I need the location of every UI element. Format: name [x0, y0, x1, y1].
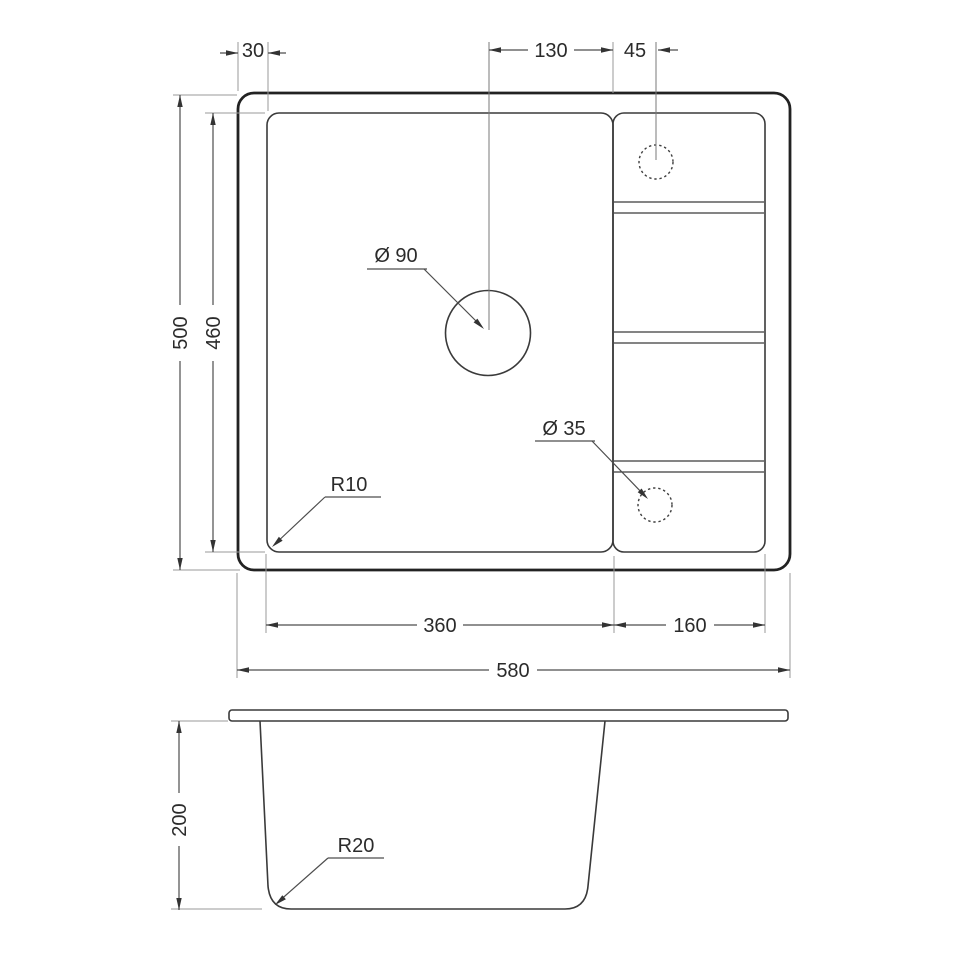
- dim-drain-diameter: Ø 90: [374, 245, 417, 267]
- dim-depth: 200: [169, 803, 191, 836]
- side-view: [229, 710, 788, 909]
- dim-tap-hole-diameter: Ø 35: [542, 418, 585, 440]
- main-bowl: [267, 113, 613, 552]
- dim-bowl-width: 360: [423, 615, 456, 637]
- dim-drainboard-width: 160: [673, 615, 706, 637]
- dimension-lines: [176, 47, 790, 910]
- dim-bowl-height: 460: [203, 316, 225, 349]
- dim-bowl-corner-radius: R10: [331, 474, 368, 496]
- drawing-canvas: 30 130 45 500 460 Ø 90 Ø 35 R10 360 160 …: [0, 0, 960, 960]
- center-lines: [489, 42, 656, 330]
- sink-technical-drawing: 30 130 45 500 460 Ø 90 Ø 35 R10 360 160 …: [0, 0, 960, 960]
- dim-bottom-corner-radius: R20: [338, 835, 375, 857]
- top-view: [238, 93, 790, 570]
- dim-tap-hole-offset: 45: [624, 40, 646, 62]
- dim-outer-width: 580: [496, 660, 529, 682]
- drainboard-grooves: [614, 202, 764, 472]
- sink-flange-profile: [229, 710, 788, 721]
- dim-tap-hole-span: 130: [534, 40, 567, 62]
- bowl-profile: [260, 721, 605, 909]
- dim-outer-height: 500: [170, 316, 192, 349]
- dimension-labels: 30 130 45 500 460 Ø 90 Ø 35 R10 360 160 …: [169, 40, 707, 857]
- extension-lines: [171, 42, 790, 909]
- dim-inset-left: 30: [242, 40, 264, 62]
